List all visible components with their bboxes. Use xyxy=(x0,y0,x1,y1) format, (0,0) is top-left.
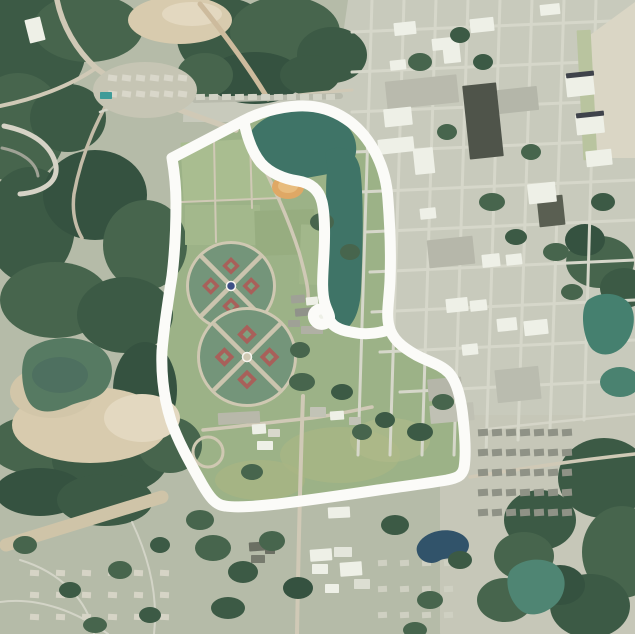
pond-west-murky-deep xyxy=(32,357,88,393)
rowhouses xyxy=(548,469,558,477)
tree-clump xyxy=(591,193,615,211)
houses xyxy=(150,74,160,81)
tree-clump xyxy=(437,124,457,140)
tree-clump xyxy=(228,561,258,583)
tree-clump xyxy=(561,284,583,300)
houses xyxy=(313,94,322,100)
building xyxy=(383,107,413,128)
rowhouses xyxy=(534,429,544,437)
rowhouses xyxy=(534,509,544,517)
houses xyxy=(378,560,387,566)
houses xyxy=(300,94,309,100)
rowhouses xyxy=(506,429,516,437)
houses xyxy=(160,592,169,598)
rowhouses xyxy=(548,509,558,517)
tree-clump xyxy=(13,536,37,554)
rowhouses xyxy=(520,489,530,497)
houses xyxy=(30,570,39,576)
tree-clump xyxy=(283,577,313,599)
houses xyxy=(108,614,117,620)
building xyxy=(325,584,339,593)
park-building xyxy=(268,429,280,437)
building xyxy=(585,149,613,168)
houses xyxy=(134,592,143,598)
building xyxy=(445,297,468,313)
building xyxy=(527,182,557,205)
building xyxy=(354,579,370,589)
tree-clump xyxy=(408,53,432,71)
tree-clump xyxy=(543,243,569,261)
tree-clump xyxy=(83,617,107,633)
rowhouses xyxy=(520,469,530,477)
rowhouses xyxy=(506,489,516,497)
tree-clump xyxy=(241,464,263,480)
building xyxy=(328,506,351,518)
tree-clump xyxy=(59,582,81,598)
rowhouses xyxy=(562,469,572,477)
forest xyxy=(280,55,340,95)
tree-clump xyxy=(290,342,310,358)
houses xyxy=(122,90,132,97)
tree-clump xyxy=(381,515,409,535)
park-building xyxy=(291,294,306,303)
building xyxy=(390,59,407,71)
houses xyxy=(261,94,270,100)
tree-clump xyxy=(505,229,527,245)
building xyxy=(496,317,517,332)
houses xyxy=(178,74,188,81)
tree-clump xyxy=(186,510,214,530)
houses xyxy=(136,90,146,97)
rowhouses xyxy=(506,509,516,517)
ballfield-pinwheel-south xyxy=(197,307,297,407)
tree-clump xyxy=(340,244,360,260)
houses xyxy=(82,570,91,576)
houses xyxy=(209,94,218,100)
tree-clump xyxy=(289,373,315,391)
houses xyxy=(378,586,387,592)
tree-clump xyxy=(521,144,541,160)
houses xyxy=(160,570,169,576)
houses xyxy=(248,94,257,100)
satellite-map-view[interactable] xyxy=(0,0,635,634)
park-building xyxy=(288,320,300,327)
parking-lot xyxy=(494,366,541,403)
building xyxy=(469,17,494,33)
houses xyxy=(122,74,132,81)
rowhouses xyxy=(506,449,516,457)
park-building xyxy=(306,296,319,305)
houses xyxy=(108,74,118,81)
houses xyxy=(274,94,283,100)
tree-clump xyxy=(195,535,231,561)
rowhouses xyxy=(478,469,488,477)
tree-clump xyxy=(108,561,132,579)
houses xyxy=(178,90,188,97)
rowhouses xyxy=(492,429,502,437)
rowhouses xyxy=(562,449,572,457)
forest xyxy=(565,224,605,256)
tree-clump xyxy=(479,193,505,211)
rowhouses xyxy=(478,449,488,457)
houses xyxy=(326,94,335,100)
building xyxy=(312,564,328,574)
houses xyxy=(164,74,174,81)
houses xyxy=(422,612,431,618)
park-building xyxy=(330,411,345,421)
building xyxy=(419,207,436,220)
center-plaza xyxy=(243,353,252,362)
building xyxy=(505,253,522,266)
building xyxy=(393,21,416,36)
park-building xyxy=(252,424,267,435)
houses xyxy=(164,90,174,97)
residential-clearing xyxy=(93,62,197,118)
tree-clump xyxy=(417,591,443,609)
rowhouses xyxy=(548,489,558,497)
rowhouses xyxy=(506,469,516,477)
building xyxy=(461,343,478,356)
houses xyxy=(400,586,409,592)
rowhouses xyxy=(562,429,572,437)
tree-clump xyxy=(473,54,493,70)
rowhouses xyxy=(520,509,530,517)
tree-clump xyxy=(450,27,470,43)
houses xyxy=(444,586,453,592)
building xyxy=(469,299,487,312)
rowhouses xyxy=(548,429,558,437)
rowhouses xyxy=(492,489,502,497)
center-plaza xyxy=(227,282,236,291)
park-building xyxy=(349,417,361,425)
building xyxy=(523,319,548,336)
shed-dark xyxy=(251,555,265,563)
houses xyxy=(222,94,231,100)
rowhouses xyxy=(492,449,502,457)
houses xyxy=(400,560,409,566)
rowhouses xyxy=(478,429,488,437)
rowhouses xyxy=(492,509,502,517)
sports-field xyxy=(185,205,260,245)
tree-clump xyxy=(407,423,433,441)
houses xyxy=(136,74,146,81)
rowhouses xyxy=(492,469,502,477)
rowhouses xyxy=(548,449,558,457)
tree-clump xyxy=(432,394,454,410)
building xyxy=(413,147,436,175)
tree-clump xyxy=(139,607,161,623)
houses xyxy=(30,592,39,598)
rowhouses xyxy=(534,489,544,497)
houses xyxy=(108,592,117,598)
houses xyxy=(150,90,160,97)
tree-clump xyxy=(375,412,395,428)
tree-clump xyxy=(448,551,472,569)
rowhouses xyxy=(534,469,544,477)
park-building xyxy=(257,441,273,450)
tree-clump xyxy=(211,597,245,619)
tree-clump xyxy=(352,424,372,440)
building xyxy=(340,561,363,577)
houses xyxy=(160,614,169,620)
field-patch xyxy=(215,460,305,500)
houses xyxy=(400,612,409,618)
houses xyxy=(134,570,143,576)
parking-lot xyxy=(427,236,476,269)
tree-clump xyxy=(331,384,353,400)
park-building xyxy=(310,407,326,417)
houses xyxy=(82,592,91,598)
houses xyxy=(287,94,296,100)
park-parking xyxy=(218,411,261,425)
building xyxy=(334,547,352,557)
houses xyxy=(56,570,65,576)
aerial-imagery xyxy=(0,0,635,634)
houses xyxy=(30,614,39,620)
rowhouses xyxy=(562,489,572,497)
rowhouses xyxy=(478,509,488,517)
rowhouses xyxy=(562,509,572,517)
houses xyxy=(196,94,205,100)
rowhouses xyxy=(478,489,488,497)
building xyxy=(481,253,500,268)
rowhouses xyxy=(534,449,544,457)
building xyxy=(310,548,333,562)
rowhouses xyxy=(520,429,530,437)
tree-clump xyxy=(150,537,170,553)
houses xyxy=(235,94,244,100)
swimming-pool xyxy=(100,92,112,99)
parking-lot xyxy=(497,86,539,114)
houses xyxy=(56,614,65,620)
houses xyxy=(444,612,453,618)
houses xyxy=(378,612,387,618)
tree-clump xyxy=(259,531,285,551)
rowhouses xyxy=(520,449,530,457)
building xyxy=(539,3,560,16)
